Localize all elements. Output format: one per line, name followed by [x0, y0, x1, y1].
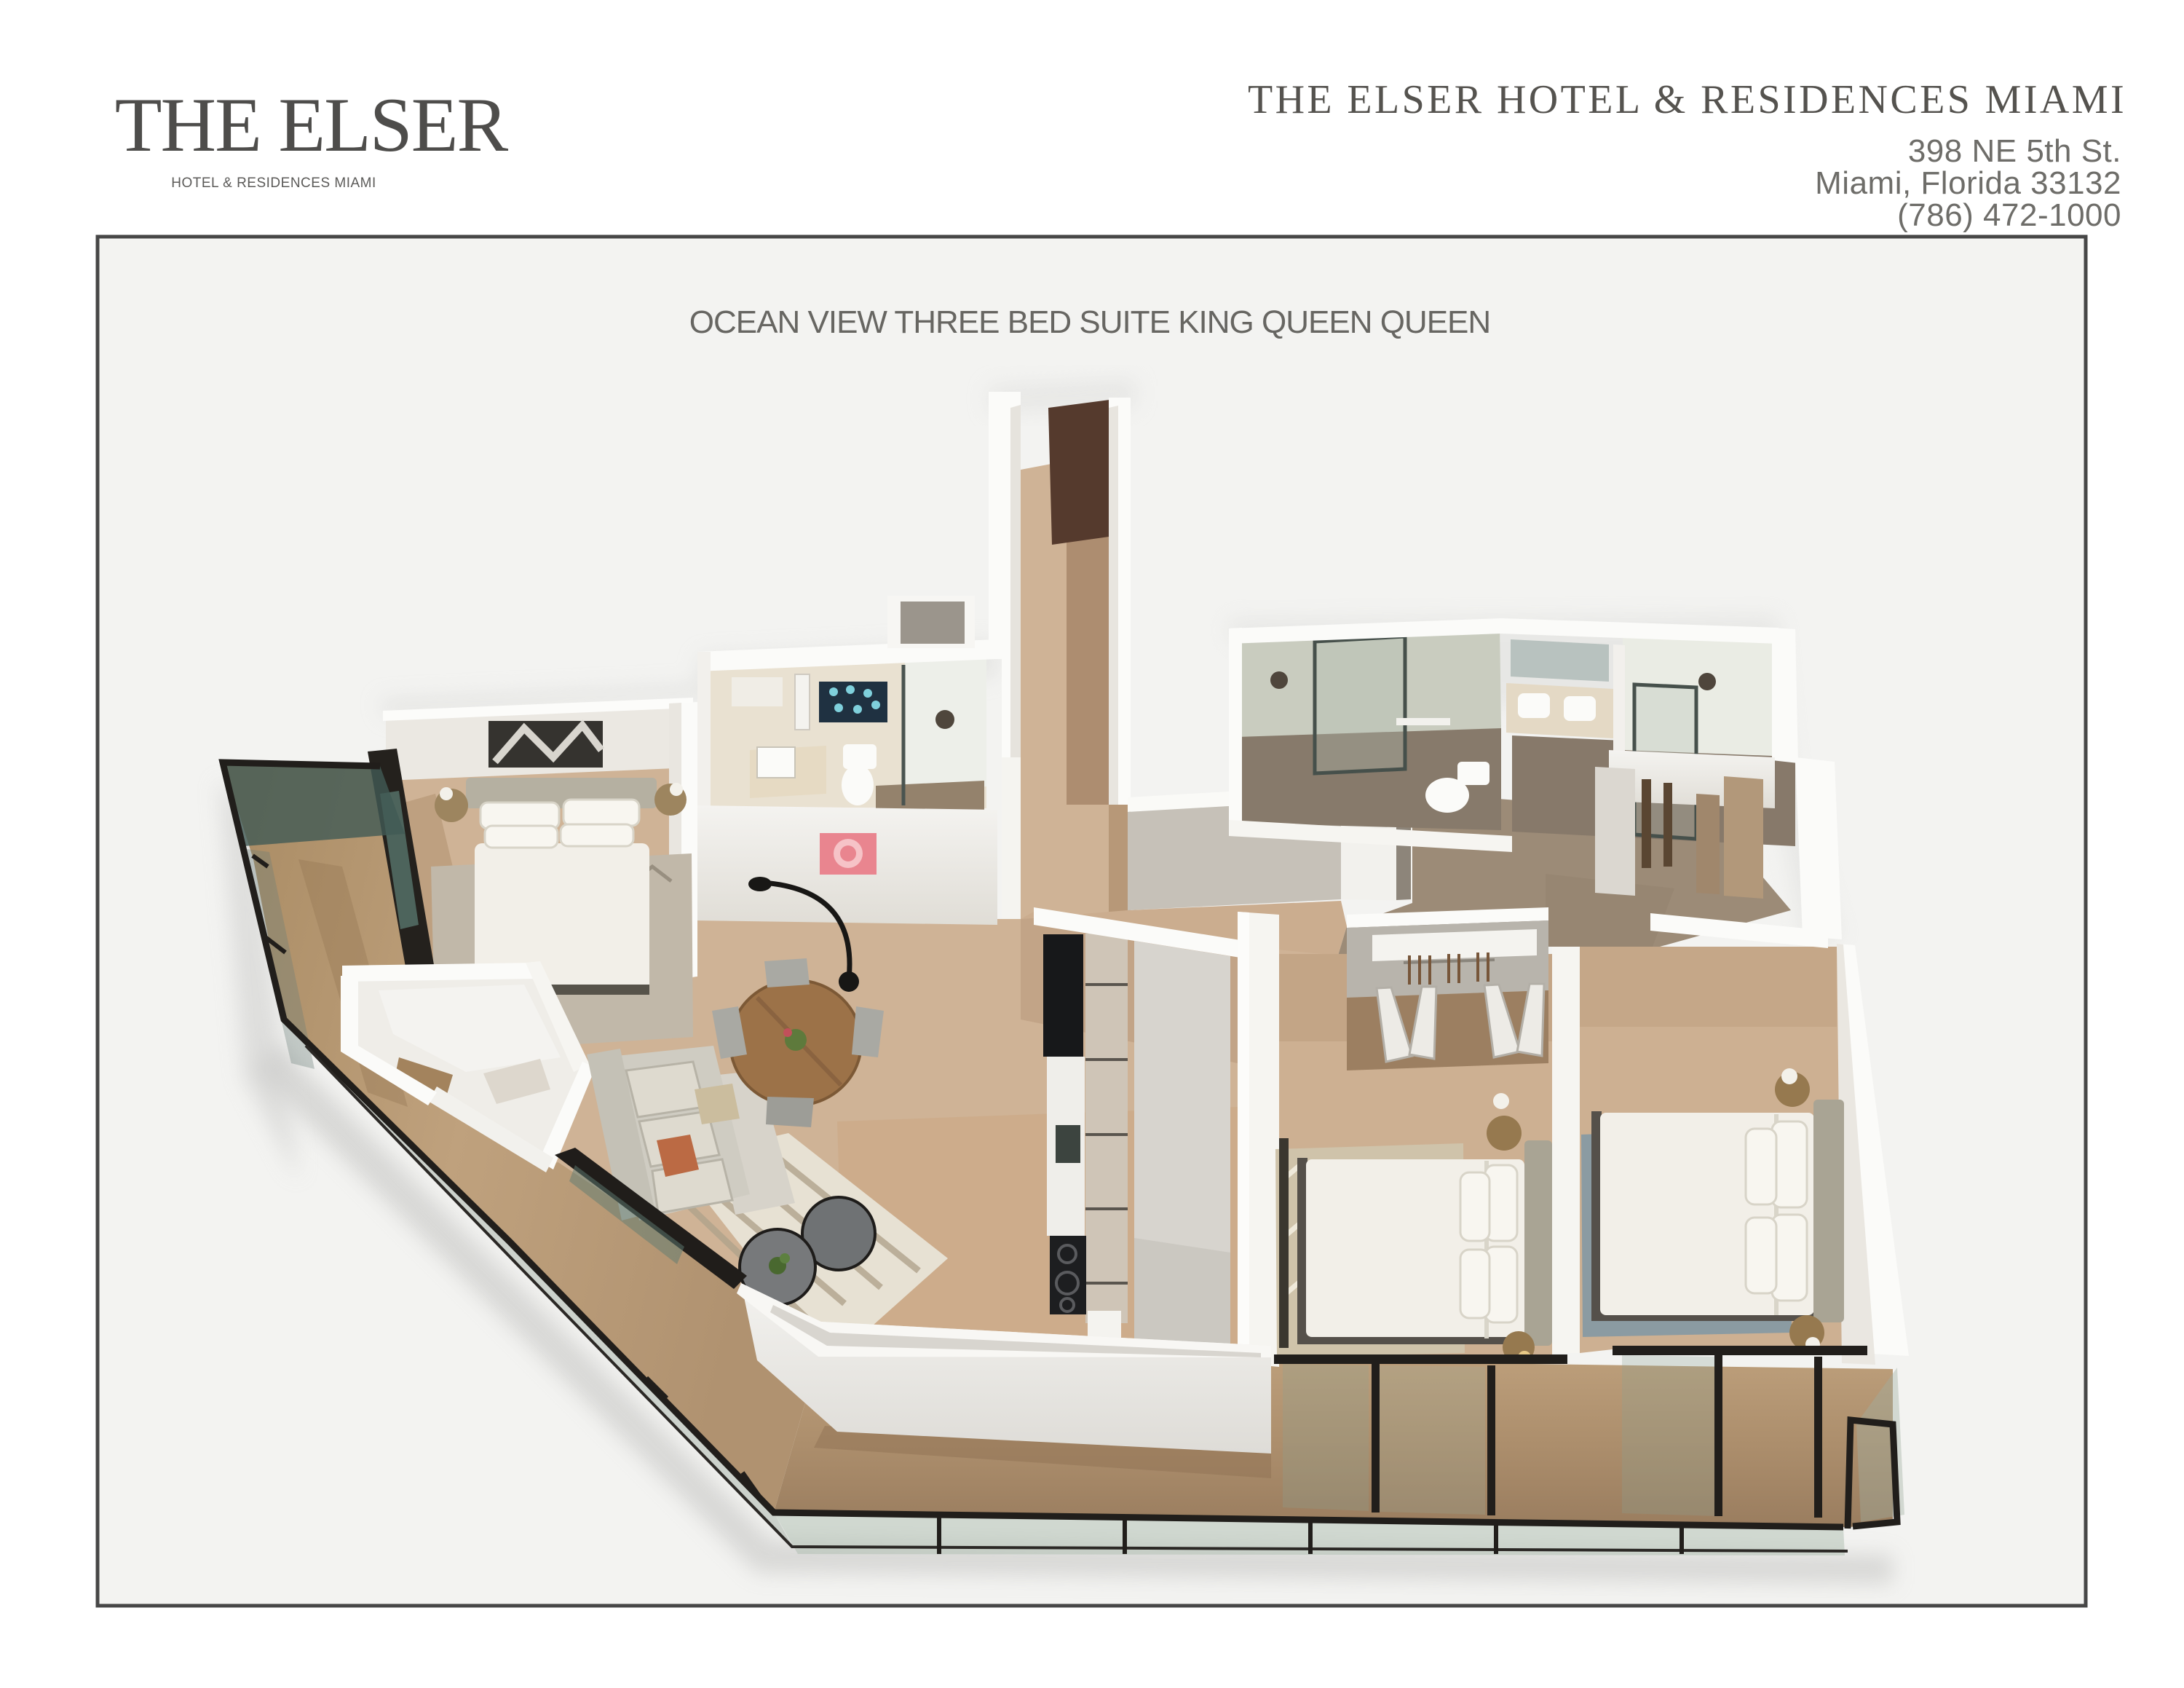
svg-text:(786) 472-1000: (786) 472-1000 — [1897, 197, 2121, 233]
svg-text:THE ELSER: THE ELSER — [115, 82, 509, 167]
svg-text:HOTEL & RESIDENCES MIAMI: HOTEL & RESIDENCES MIAMI — [171, 175, 376, 191]
svg-text:Miami, Florida 33132: Miami, Florida 33132 — [1815, 165, 2121, 201]
svg-text:OCEAN VIEW THREE BED SUITE KIN: OCEAN VIEW THREE BED SUITE KING QUEEN QU… — [689, 304, 1490, 340]
svg-text:THE ELSER HOTEL & RESIDENCES M: THE ELSER HOTEL & RESIDENCES MIAMI — [1248, 77, 2126, 122]
svg-text:398 NE 5th St.: 398 NE 5th St. — [1908, 133, 2121, 169]
